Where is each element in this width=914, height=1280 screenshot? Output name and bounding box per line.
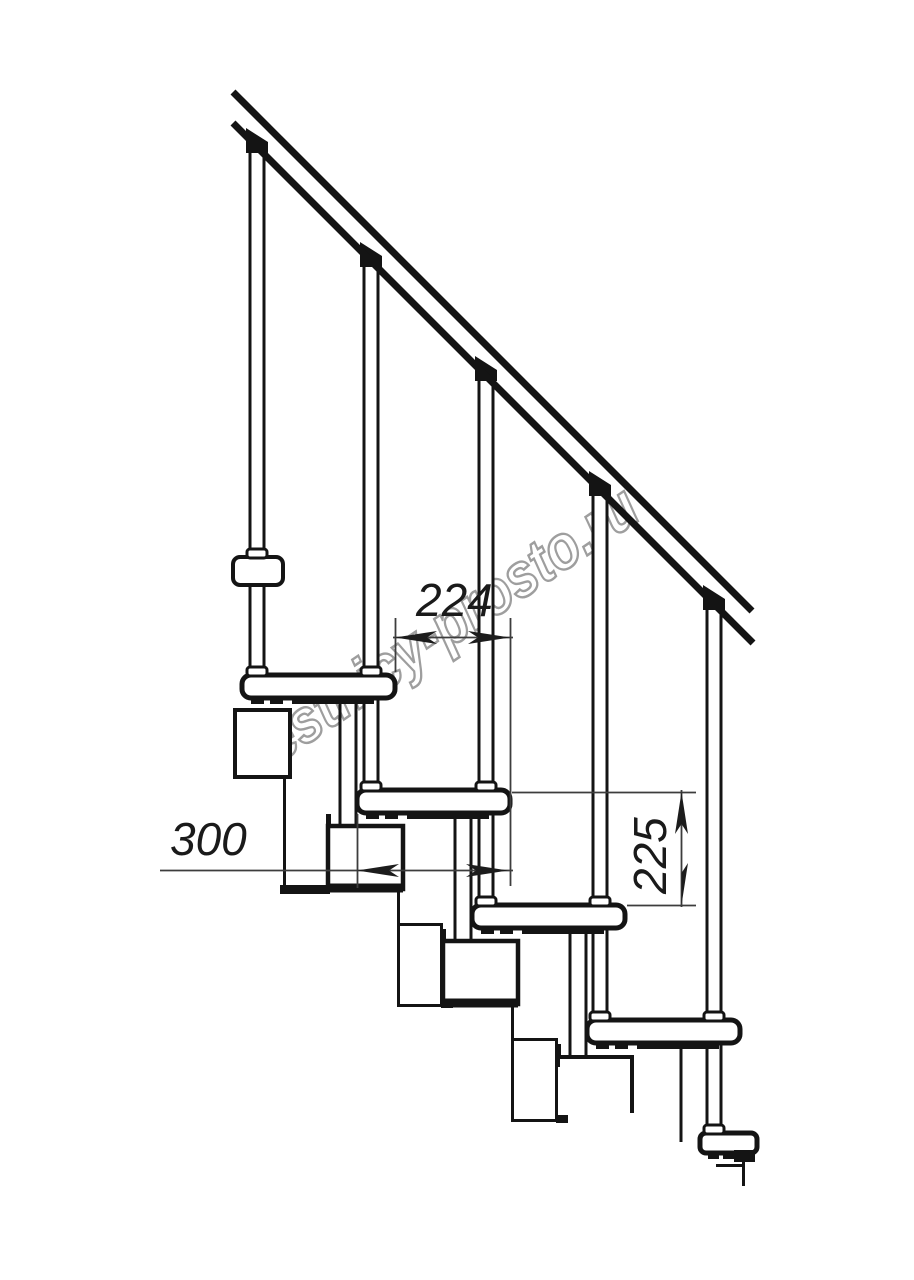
module-box-3-nub [556,1044,561,1057]
staircase-side-view: lestnicy-prosto.ru [0,0,914,1280]
tread-2 [357,790,510,813]
collar-4-tread4 [590,1012,610,1021]
module-box-1-nub [326,814,331,827]
tread-2-tab-b [385,812,398,819]
link-tab-2 [441,1000,453,1008]
tread-1-tab-b [270,697,283,704]
collar-1-tread1 [247,667,267,676]
collar-3-tread2 [476,782,496,791]
tread-3-strap [522,926,604,934]
link-tab-3 [556,1115,568,1123]
tread-2-tab-a [366,812,379,819]
collar-4-tread3 [590,897,610,906]
baluster-4 [593,492,607,1022]
dimension-label-going: 224 [415,574,493,626]
collar-3-tread3 [476,897,496,906]
module-box-2 [443,941,518,1004]
tread-4-strap [637,1041,719,1049]
tread-5-tab-b [723,1151,734,1159]
dimension-label-depth: 300 [170,813,247,865]
tread-5-block [734,1150,755,1162]
tread-1-tab-a [251,697,264,704]
tread-3-tab-b [500,927,513,934]
baluster-5 [707,606,721,1135]
tread-1-strap [292,696,374,704]
collar-1-profile [247,549,267,558]
tread-3 [472,905,625,928]
link-strap-1 [280,885,330,894]
tread-5-tab-a [708,1151,719,1159]
baluster-2 [364,263,378,792]
upper-tread-edge-profile [233,557,283,585]
collar-5-tread4 [704,1012,724,1021]
tread-4-tab-a [596,1042,609,1049]
baluster-1 [250,149,264,677]
tread-1 [242,675,395,698]
collar-2-tread2 [361,782,381,791]
baluster-3 [479,377,493,907]
tread-4 [587,1020,740,1043]
tread-3-tab-a [481,927,494,934]
tread-2-strap [407,811,489,819]
tread-4-tab-b [615,1042,628,1049]
module-box-2-nub [441,929,446,942]
collar-2-tread1 [361,667,381,676]
module-box-1 [328,826,403,889]
upper-flight-box [235,710,290,777]
staircase-drawing-canvas: lestnicy-prosto.ru [0,0,914,1280]
collar-5-tread5 [704,1125,724,1134]
dimension-label-rise: 225 [624,817,676,895]
